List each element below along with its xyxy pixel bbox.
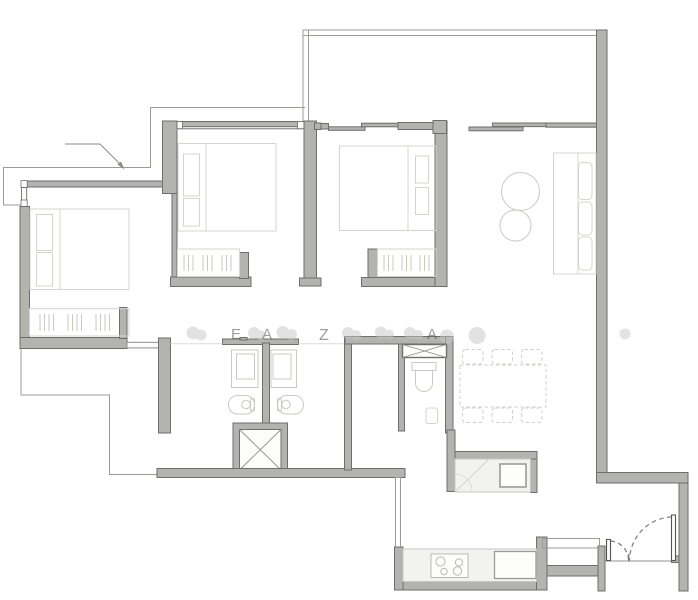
svg-text:A: A — [427, 326, 437, 343]
svg-text:Z: Z — [319, 327, 329, 344]
svg-text:A: A — [262, 326, 272, 343]
svg-text:E: E — [231, 326, 241, 343]
